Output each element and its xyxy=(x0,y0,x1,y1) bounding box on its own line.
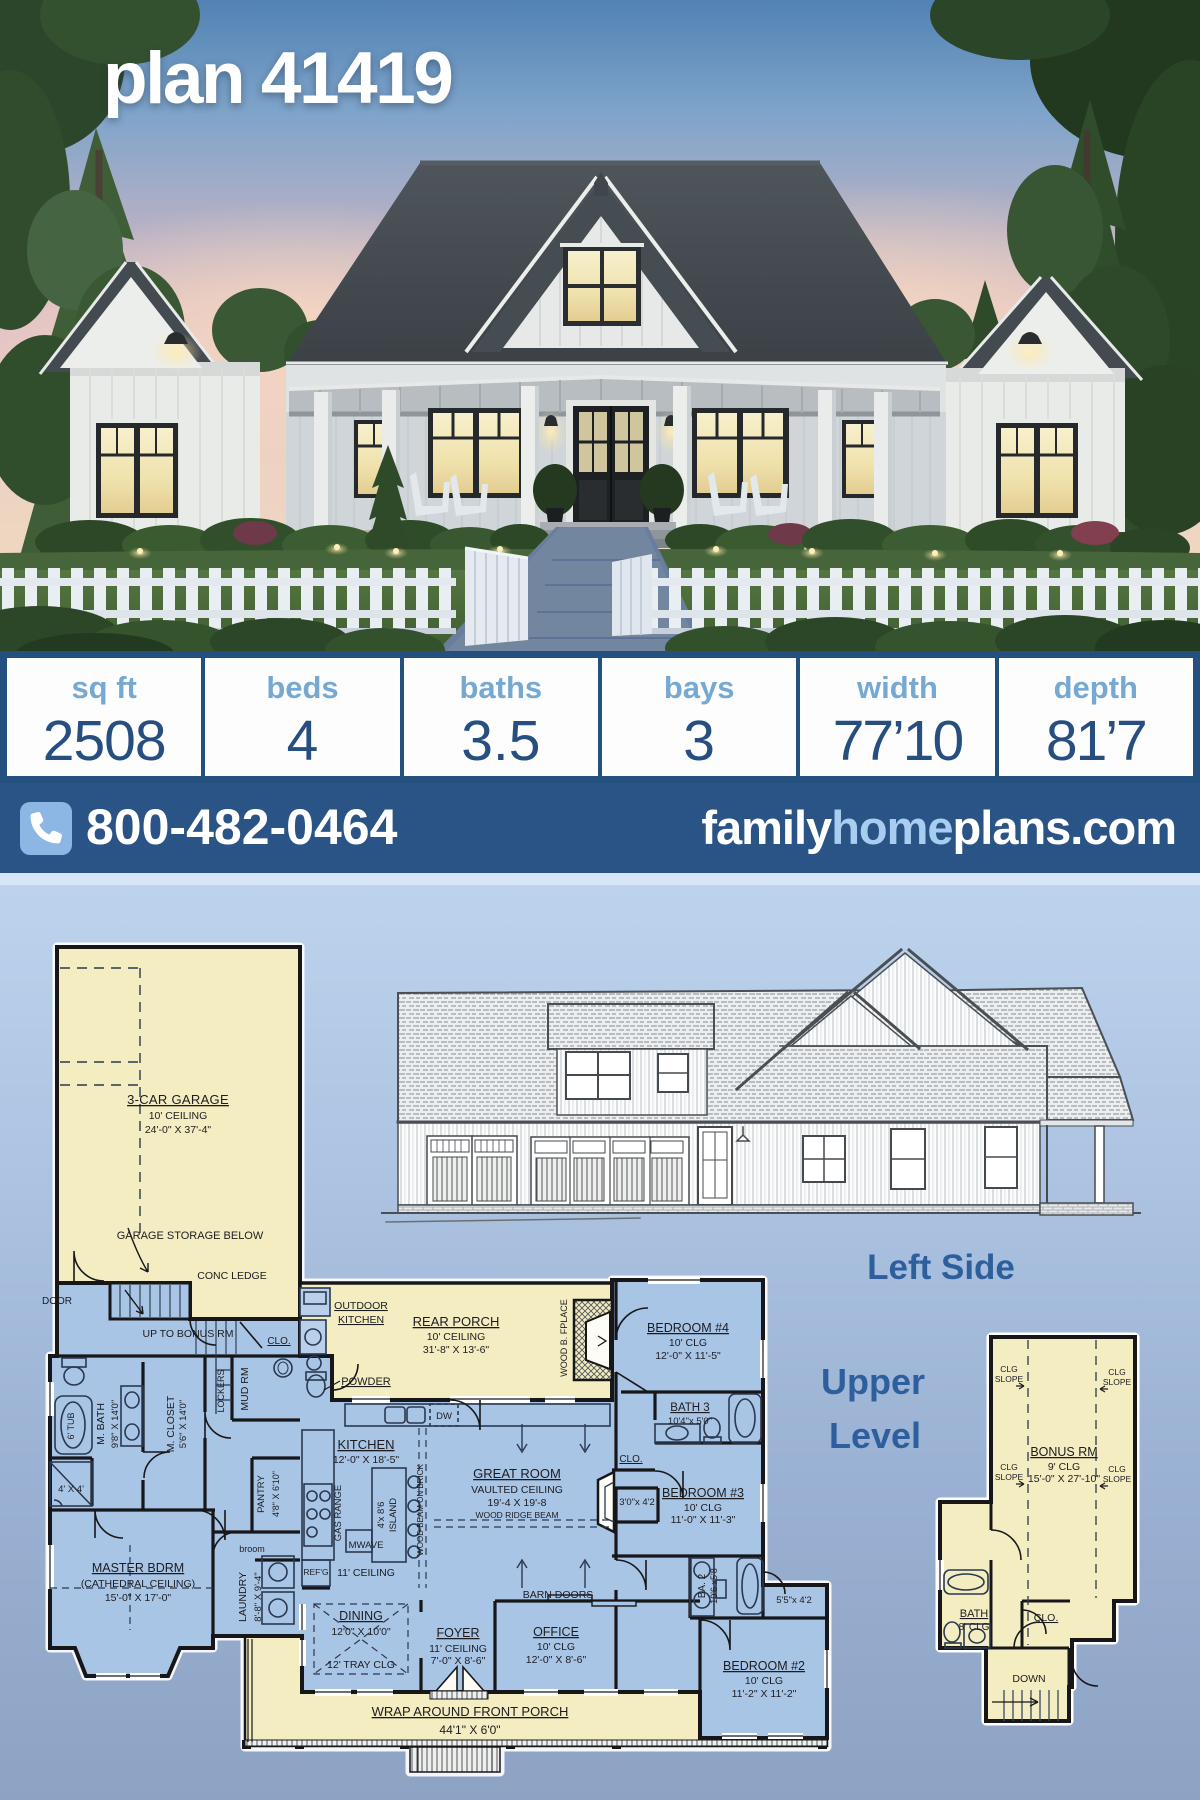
svg-text:ISLAND: ISLAND xyxy=(388,1498,399,1532)
svg-text:CLG: CLG xyxy=(1108,1367,1125,1377)
svg-text:12'-0" X 11'-5": 12'-0" X 11'-5" xyxy=(655,1350,721,1362)
svg-text:Level: Level xyxy=(829,1415,921,1456)
svg-text:BONUS RM: BONUS RM xyxy=(1030,1445,1097,1459)
svg-text:plan 41419: plan 41419 xyxy=(103,38,451,119)
svg-text:(CATHEDRAL CEILING): (CATHEDRAL CEILING) xyxy=(81,1578,195,1590)
svg-text:WOOD BEAM ON BRICK: WOOD BEAM ON BRICK xyxy=(416,1464,425,1556)
svg-text:OFFICE: OFFICE xyxy=(533,1625,579,1639)
svg-text:DW: DW xyxy=(436,1411,452,1422)
svg-text:MWAVE: MWAVE xyxy=(349,1540,384,1551)
svg-text:9'8" X 14'0": 9'8" X 14'0" xyxy=(110,1400,121,1448)
svg-text:SLOPE: SLOPE xyxy=(995,1374,1024,1384)
svg-text:KITCHEN: KITCHEN xyxy=(337,1437,394,1452)
svg-text:15'-0" X 27'-10": 15'-0" X 27'-10" xyxy=(1028,1473,1100,1485)
svg-text:GREAT ROOM: GREAT ROOM xyxy=(473,1466,561,1481)
svg-text:12'-0" X 8'-6": 12'-0" X 8'-6" xyxy=(526,1654,587,1666)
svg-text:DINING: DINING xyxy=(339,1609,383,1623)
svg-text:12'-0" X 18'-5": 12'-0" X 18'-5" xyxy=(333,1454,400,1466)
svg-text:CLG: CLG xyxy=(1108,1464,1125,1474)
svg-text:M. BATH: M. BATH xyxy=(95,1403,107,1445)
svg-text:9' CLG: 9' CLG xyxy=(1048,1461,1080,1473)
svg-text:6' TUB: 6' TUB xyxy=(66,1412,76,1439)
svg-text:broom: broom xyxy=(239,1544,265,1554)
svg-text:GAS RANGE: GAS RANGE xyxy=(333,1485,344,1542)
svg-text:10' CEILING: 10' CEILING xyxy=(427,1331,486,1343)
svg-text:WOOD B. FPLACE: WOOD B. FPLACE xyxy=(559,1299,569,1377)
svg-text:5'6" X 14'0": 5'6" X 14'0" xyxy=(178,1400,189,1448)
svg-text:11' CEILING: 11' CEILING xyxy=(337,1567,395,1579)
svg-text:KITCHEN: KITCHEN xyxy=(338,1314,384,1326)
svg-text:DOWN: DOWN xyxy=(1012,1673,1045,1685)
svg-text:SLOPE: SLOPE xyxy=(1103,1474,1132,1484)
svg-text:WOOD RIDGE BEAM: WOOD RIDGE BEAM xyxy=(475,1510,558,1520)
svg-text:LOCKERS: LOCKERS xyxy=(216,1369,226,1412)
svg-text:4'x 8'6: 4'x 8'6 xyxy=(376,1502,387,1529)
svg-text:10' CLG: 10' CLG xyxy=(669,1337,707,1349)
svg-text:GARAGE STORAGE BELOW: GARAGE STORAGE BELOW xyxy=(117,1230,264,1242)
svg-text:12' TRAY CLG: 12' TRAY CLG xyxy=(327,1659,395,1671)
svg-text:8'-8" X 9'-4": 8'-8" X 9'-4" xyxy=(253,1572,264,1621)
svg-text:10'4"x 5'0": 10'4"x 5'0" xyxy=(668,1416,712,1427)
svg-text:4'8" X 6'10": 4'8" X 6'10" xyxy=(271,1471,281,1517)
svg-text:SLOPE: SLOPE xyxy=(1103,1377,1132,1387)
svg-text:CLG: CLG xyxy=(1000,1462,1017,1472)
svg-text:DOOR: DOOR xyxy=(42,1296,72,1307)
svg-text:11'-2" X 11'-2": 11'-2" X 11'-2" xyxy=(732,1688,797,1700)
svg-text:CLO.: CLO. xyxy=(1034,1612,1059,1624)
svg-text:MASTER BDRM: MASTER BDRM xyxy=(92,1561,184,1575)
svg-text:10'6 x5'8: 10'6 x5'8 xyxy=(709,1568,719,1603)
svg-text:10' CLG: 10' CLG xyxy=(684,1502,722,1514)
svg-text:REF'G: REF'G xyxy=(303,1567,328,1577)
svg-text:31'-8" X 13'-6": 31'-8" X 13'-6" xyxy=(423,1344,490,1356)
svg-text:10' CLG: 10' CLG xyxy=(537,1641,575,1653)
svg-text:3'0"x 4'2: 3'0"x 4'2 xyxy=(619,1497,655,1508)
svg-text:11'-0" X 11'-3": 11'-0" X 11'-3" xyxy=(671,1514,736,1526)
svg-text:MUD RM: MUD RM xyxy=(239,1367,251,1410)
svg-text:44'1" X 6'0": 44'1" X 6'0" xyxy=(439,1723,500,1737)
svg-text:SLOPE: SLOPE xyxy=(995,1472,1024,1482)
svg-text:5'5"x 4'2: 5'5"x 4'2 xyxy=(776,1595,812,1606)
svg-text:CONC LEDGE: CONC LEDGE xyxy=(197,1270,266,1282)
svg-text:4' X 4': 4' X 4' xyxy=(58,1484,84,1495)
svg-text:19'-4 X 19'-8: 19'-4 X 19'-8 xyxy=(488,1497,547,1509)
svg-text:7'-0" X 8'-6": 7'-0" X 8'-6" xyxy=(431,1655,486,1667)
svg-text:LAUNDRY: LAUNDRY xyxy=(237,1572,249,1622)
svg-text:BA. 2: BA. 2 xyxy=(697,1573,708,1598)
svg-text:BEDROOM #3: BEDROOM #3 xyxy=(662,1486,744,1500)
svg-text:REAR PORCH: REAR PORCH xyxy=(413,1314,500,1329)
svg-text:11' CEILING: 11' CEILING xyxy=(429,1643,487,1655)
svg-text:3-CAR GARAGE: 3-CAR GARAGE xyxy=(127,1092,229,1107)
svg-text:8' CLG: 8' CLG xyxy=(959,1622,990,1633)
svg-text:FOYER: FOYER xyxy=(436,1626,479,1640)
svg-text:M. CLOSET: M. CLOSET xyxy=(165,1395,177,1452)
svg-text:BATH 3: BATH 3 xyxy=(670,1402,709,1414)
svg-text:WRAP AROUND FRONT PORCH: WRAP AROUND FRONT PORCH xyxy=(372,1704,569,1719)
svg-text:Left Side: Left Side xyxy=(867,1248,1015,1287)
svg-text:BEDROOM #2: BEDROOM #2 xyxy=(723,1659,805,1673)
svg-text:CLG: CLG xyxy=(1000,1364,1017,1374)
svg-text:BARN DOORS: BARN DOORS xyxy=(523,1589,594,1601)
svg-text:UP TO BONUS RM: UP TO BONUS RM xyxy=(142,1328,233,1340)
svg-text:POWDER: POWDER xyxy=(341,1376,391,1388)
svg-text:BEDROOM #4: BEDROOM #4 xyxy=(647,1321,729,1335)
svg-text:CLO.: CLO. xyxy=(619,1454,642,1465)
svg-text:12'0" X 10'0": 12'0" X 10'0" xyxy=(331,1626,391,1638)
svg-text:10' CEILING: 10' CEILING xyxy=(149,1110,208,1122)
svg-text:VAULTED CEILING: VAULTED CEILING xyxy=(471,1484,563,1496)
svg-text:PANTRY: PANTRY xyxy=(256,1475,267,1513)
svg-text:24'-0" X 37'-4": 24'-0" X 37'-4" xyxy=(145,1124,212,1136)
svg-text:CLO.: CLO. xyxy=(267,1336,290,1347)
svg-text:BATH: BATH xyxy=(960,1608,989,1620)
svg-text:OUTDOOR: OUTDOOR xyxy=(334,1300,388,1312)
svg-text:15'-0" X 17'-0": 15'-0" X 17'-0" xyxy=(105,1592,172,1604)
svg-text:Upper: Upper xyxy=(821,1361,925,1402)
svg-text:10' CLG: 10' CLG xyxy=(745,1675,783,1687)
